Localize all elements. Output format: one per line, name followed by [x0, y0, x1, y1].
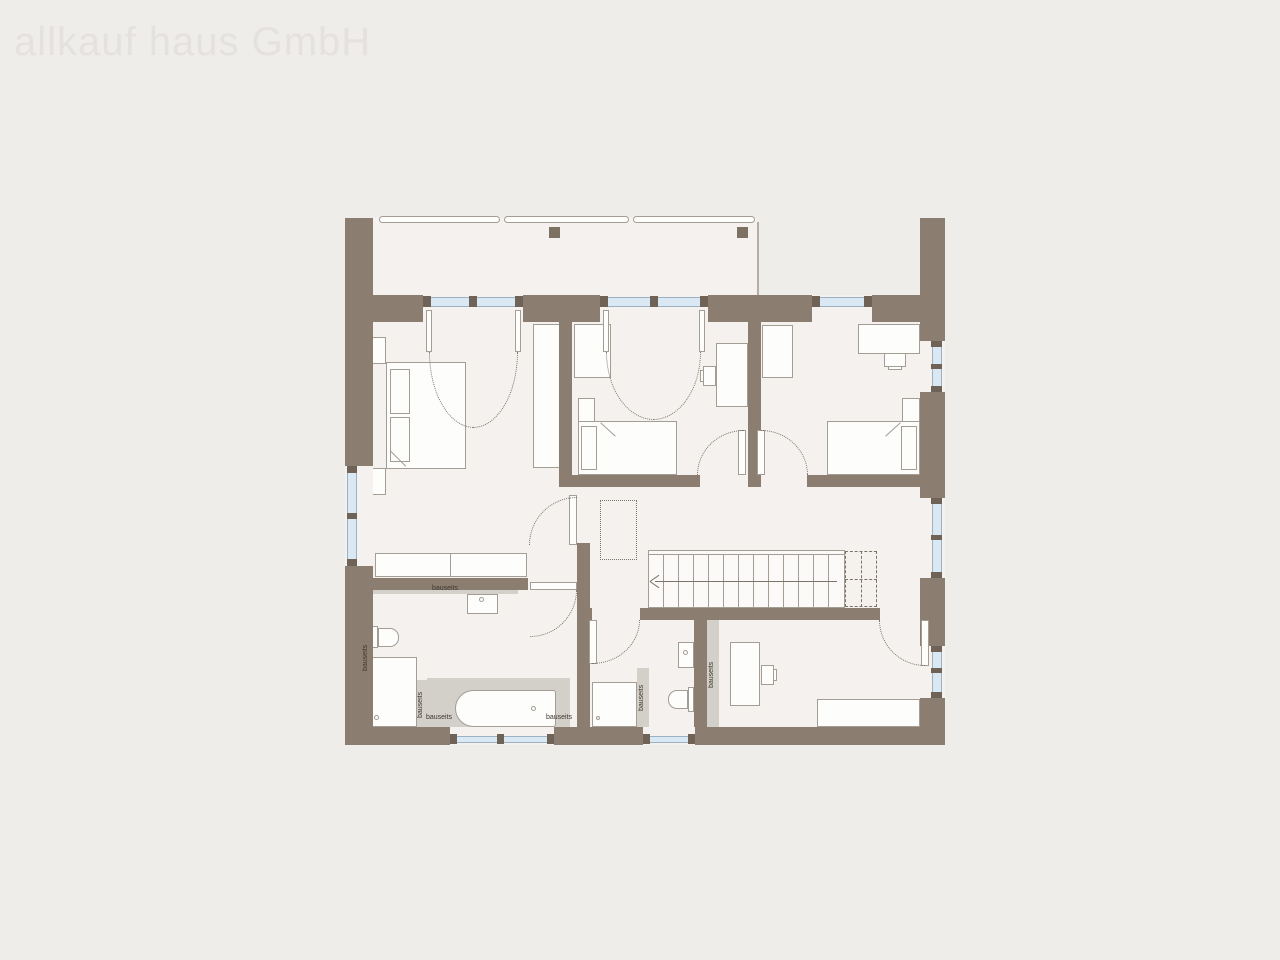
french-door-leaf [603, 310, 609, 352]
french-door-leaf [699, 310, 705, 352]
annotation-tub-left: bauseits [422, 714, 456, 722]
pillow [901, 426, 917, 470]
shaft-dashed-outline [600, 500, 637, 560]
pillow [390, 369, 410, 414]
nightstand [578, 398, 595, 422]
desk-chair-back [888, 366, 902, 370]
bathtub-drain [531, 706, 536, 711]
window-jamb [347, 513, 357, 519]
french-door-leaf [515, 310, 521, 352]
desk-chair-back [773, 669, 777, 681]
window-jamb [688, 734, 695, 744]
sideboard [375, 553, 527, 577]
door-leaf [530, 582, 577, 590]
balcony-post [549, 227, 560, 238]
desk [858, 324, 920, 354]
window-jamb [931, 498, 942, 504]
window-jamb [931, 668, 942, 673]
annotation-left-wall: bauseits [362, 632, 372, 684]
pillow [390, 417, 410, 462]
wall-under-stairs [640, 608, 880, 620]
desk-chair [703, 366, 716, 386]
door-jamb [650, 296, 658, 307]
floor-plan: allkauf haus GmbH [0, 0, 1280, 960]
toilet-bowl [668, 690, 688, 709]
window-jamb [931, 535, 942, 540]
window-jamb [812, 296, 820, 307]
window-jamb [547, 734, 554, 744]
window-jamb [347, 559, 357, 566]
door-jamb [600, 296, 608, 307]
washbasin-drain [479, 597, 484, 602]
window-glazing [645, 736, 693, 743]
balcony-railing-segment [633, 216, 755, 223]
sideboard [817, 699, 920, 727]
window-jamb [931, 341, 942, 347]
stair-direction-line [655, 581, 837, 582]
balcony-post [737, 227, 748, 238]
annotation-wc-wall: bauseits [638, 674, 648, 722]
door-jamb [469, 296, 477, 307]
wall-stair-left-stub [577, 608, 592, 620]
balcony-railing-segment [379, 216, 500, 223]
wardrobe [533, 324, 560, 468]
wardrobe [762, 325, 793, 378]
toilet-bowl [378, 628, 399, 647]
annotation-tub-right: bauseits [542, 714, 576, 722]
wall-child2-hall [807, 475, 920, 487]
wall-child1-hall [591, 475, 700, 487]
shower-drain [374, 715, 379, 720]
nightstand [902, 398, 920, 423]
bathtub [455, 690, 556, 727]
desk [716, 343, 748, 407]
window-jamb [931, 386, 942, 392]
brand-watermark: allkauf haus GmbH [14, 20, 371, 65]
shower [592, 682, 637, 727]
desk [730, 642, 760, 706]
balcony-edge-line [757, 222, 759, 295]
staircase-cut-line [845, 579, 877, 580]
wall-master-child1 [559, 322, 572, 480]
shower-drain [596, 716, 600, 720]
window-jamb [864, 296, 872, 307]
window-jamb [931, 692, 942, 698]
sideboard-divider [450, 553, 451, 577]
annotation-vanity: bauseits [405, 585, 485, 593]
washbasin-drain [683, 650, 688, 655]
desk-chair [884, 353, 906, 367]
window-jamb [347, 466, 357, 473]
balcony-railing-segment [504, 216, 629, 223]
pillow [581, 426, 597, 470]
window-jamb [931, 646, 942, 652]
washbasin [678, 642, 694, 668]
door-jamb [515, 296, 523, 307]
door-jamb [423, 296, 431, 307]
annotation-stair-wall: bauseits [708, 650, 718, 700]
window-jamb [931, 572, 942, 578]
window-jamb [643, 734, 650, 744]
window-jamb [931, 364, 942, 369]
wall-wc-study [694, 620, 707, 728]
french-door-leaf [426, 310, 432, 352]
window-jamb [450, 734, 457, 744]
wall-stub-master [559, 475, 592, 487]
window-jamb [497, 734, 504, 744]
desk-chair-back [700, 370, 704, 382]
door-jamb [700, 296, 708, 307]
window-glazing [814, 297, 870, 307]
balcony-floor [373, 218, 757, 295]
